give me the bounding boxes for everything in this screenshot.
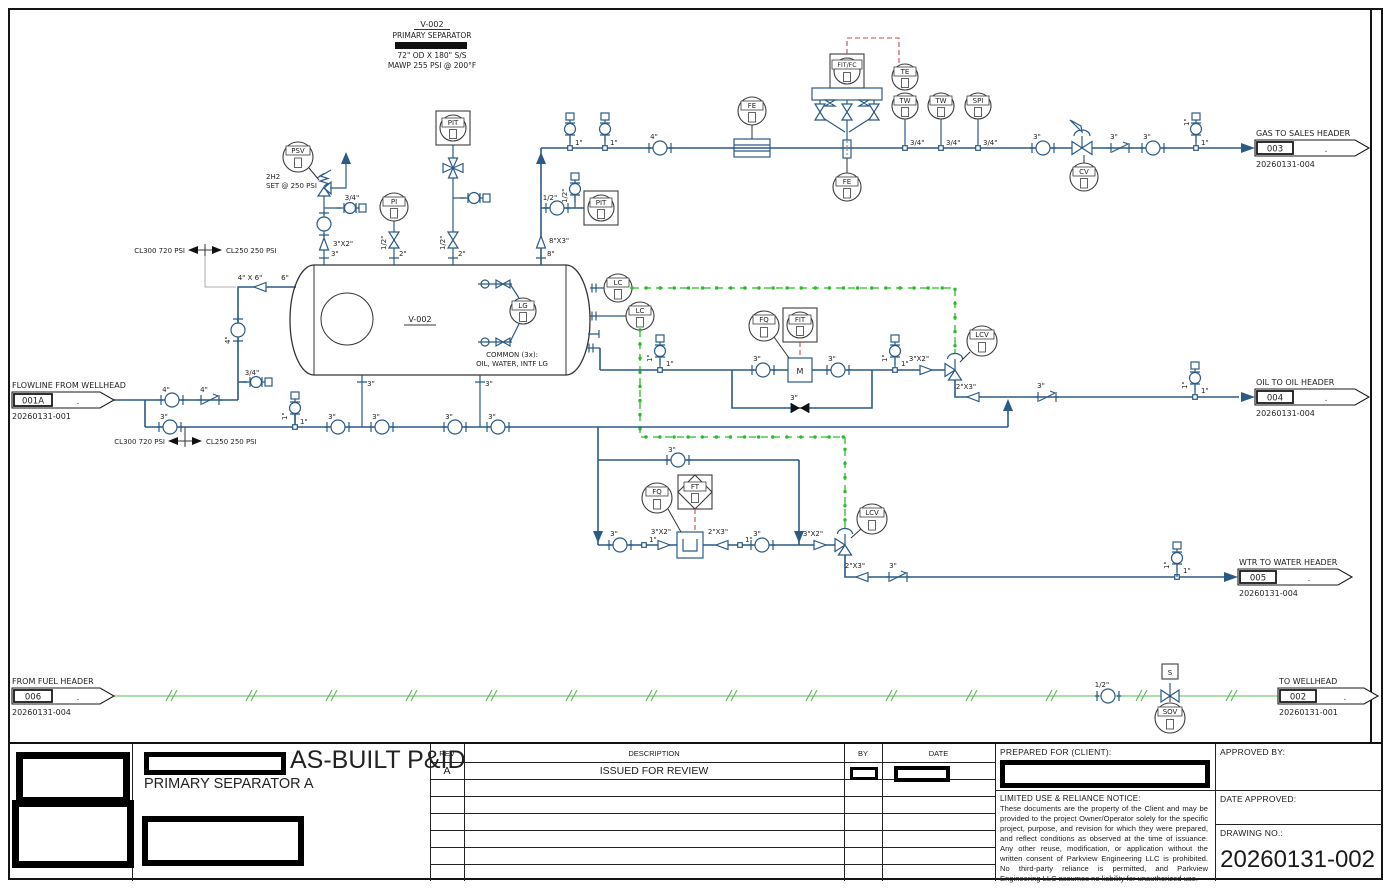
svg-text:TW: TW [934, 97, 946, 105]
size-label: 1" [1183, 118, 1191, 126]
line-dwg: 20260131-001 [1279, 708, 1338, 717]
svg-text:LG: LG [518, 302, 527, 310]
pid-drawing-page: V-002 PRIMARY SEPARATOR 72" OD X 180" S/… [0, 0, 1392, 889]
size-label: 3" [488, 413, 496, 421]
svg-text:SPI: SPI [973, 97, 984, 105]
redacted-logo [12, 800, 134, 868]
size-label: 1/2" [543, 194, 558, 202]
size-label: 3" [1110, 133, 1118, 141]
drawing-no-label: DRAWING NO.: [1220, 828, 1283, 838]
size-label: 3" [610, 530, 618, 538]
connector-gas-out: 003 . GAS TO SALES HEADER 20260131-004 [1241, 129, 1369, 169]
vent-valve [655, 335, 666, 365]
size-label: 2" [458, 250, 466, 258]
drain-valve [242, 377, 272, 388]
ball-valve [442, 420, 468, 434]
meter-label: M [797, 367, 804, 376]
instrument-fit: FIT [783, 308, 817, 342]
svg-text:PIT: PIT [596, 199, 607, 207]
equipment-rating: MAWP 255 PSI @ 200°F [388, 61, 476, 70]
spec-class-right: CL250 250 PSI [206, 438, 257, 446]
size-label: 6" [281, 274, 289, 282]
vent-valve [460, 193, 490, 204]
size-label: 1/2" [380, 236, 388, 251]
redacted-by [850, 767, 878, 780]
spec-class-right: CL250 250 PSI [226, 247, 277, 255]
size-label: 4" [162, 386, 170, 394]
expander-2x3 [856, 573, 868, 582]
svg-text:CV: CV [1079, 168, 1089, 176]
size-label: 2"X3" [845, 562, 865, 570]
size-label: 1" [1181, 381, 1189, 389]
spec-break-top: CL300 720 PSI CL250 250 PSI [134, 244, 276, 256]
size-label: 3" [889, 562, 897, 570]
instrument-pit-1: PIT [436, 111, 470, 145]
size-label: 1/2" [439, 236, 447, 251]
size-label: 1" [1201, 139, 1209, 147]
inlet-piping: 4" 4" 4" 4" X 6" 6" 3/4" [114, 256, 296, 427]
size-label: 1" [649, 536, 657, 544]
level-control-valve [835, 529, 853, 556]
equipment-name: PRIMARY SEPARATOR [392, 31, 471, 40]
connector-flowline-in: 001A . FLOWLINE FROM WELLHEAD 20260131-0… [12, 381, 126, 421]
ball-valve [749, 538, 775, 552]
line-title: TO WELLHEAD [1278, 677, 1337, 686]
size-label: 3" [1033, 133, 1041, 141]
size-label: 1" [666, 360, 674, 368]
svg-text:SOV: SOV [1163, 708, 1178, 716]
instrument-te: TE [892, 64, 918, 90]
line-dwg: 20260131-004 [12, 708, 71, 717]
size-label: 3" [753, 530, 761, 538]
line-number: 006 [25, 693, 41, 703]
gas-riser: PIT 8"X3" 8" 1/2" 1/2" [536, 148, 618, 265]
manway [321, 293, 373, 345]
rev-col-header: REV [430, 749, 464, 758]
svg-text:LCV: LCV [975, 331, 989, 339]
svg-text:FE: FE [748, 102, 756, 110]
size-label: 1/2" [1095, 681, 1110, 689]
svg-text:FT: FT [691, 483, 700, 491]
size-label: 3" [445, 413, 453, 421]
vent-valve [600, 113, 611, 143]
psv-set-note: SET @ 250 PSI [266, 182, 317, 190]
reducer-3x2 [320, 238, 329, 250]
svg-text:FQ: FQ [652, 488, 662, 496]
size-label: 1" [1183, 567, 1191, 575]
size-label: 3/4" [910, 139, 925, 147]
control-valve [1070, 120, 1092, 155]
check-valve [1035, 391, 1059, 402]
size-label: 3" [328, 413, 336, 421]
water-line: LCV FQ FT 3" 1" 3"X2" 2"X3" 1" 3" 3"X2" … [598, 475, 1224, 582]
svg-text:LCV: LCV [865, 509, 879, 517]
level-control-valve [945, 354, 963, 381]
line-dwg: 20260131-004 [1239, 589, 1298, 598]
check-valve [1108, 142, 1132, 153]
size-label: 3" [367, 380, 375, 388]
rev-a: A [430, 765, 464, 777]
date-approved-label: DATE APPROVED: [1220, 794, 1296, 804]
line-dot: . [77, 693, 80, 703]
spec-class-left: CL300 720 PSI [134, 247, 185, 255]
check-valve [886, 571, 910, 582]
rev-a-description: ISSUED FOR REVIEW [464, 765, 844, 777]
svg-text:LC: LC [614, 279, 623, 287]
ball-valve [607, 538, 633, 552]
psv-branch: PSV 2H2 SET @ 250 PSI 3/4" 3"X2" 3" [266, 142, 366, 258]
line-dwg: 20260131-001 [12, 412, 71, 421]
redacted-client [1000, 760, 1210, 788]
approved-by-label: APPROVED BY: [1220, 747, 1285, 757]
instrument-fe-2: FE [833, 173, 861, 201]
spec-break-bottom: CL300 720 PSI CL250 250 PSI [114, 427, 256, 447]
date-col-header: DATE [882, 749, 995, 758]
flow-meter [677, 532, 703, 558]
instrument-fe-1: FE [738, 97, 766, 125]
ball-valve [325, 420, 351, 434]
svg-text:PSV: PSV [291, 147, 305, 155]
svg-text:PI: PI [391, 198, 397, 206]
size-label: 1" [1163, 561, 1171, 569]
line-dot: . [77, 397, 80, 407]
connector-oil-out: 004 . OIL TO OIL HEADER 20260131-004 [1241, 378, 1369, 418]
size-label: 3" [753, 355, 761, 363]
expander-2x3 [716, 541, 728, 550]
line-number: 004 [1267, 394, 1283, 404]
reducer-8x3 [537, 236, 546, 248]
ball-valve [159, 393, 185, 407]
size-label: 3" [372, 413, 380, 421]
ball-valve [647, 141, 673, 155]
svg-text:FIT: FIT [795, 316, 806, 324]
line-title: FLOWLINE FROM WELLHEAD [12, 381, 126, 390]
instrument-fq-1: FQ [749, 311, 779, 341]
instrument-sov: SOV [1155, 703, 1185, 733]
size-label: 4" [224, 336, 232, 344]
instrument-pit-2: PIT [584, 191, 618, 225]
connector-water-out: 005 . WTR TO WATER HEADER 20260131-004 [1224, 558, 1352, 598]
closed-valve [789, 403, 811, 413]
line-dot: . [1325, 394, 1328, 404]
manifold-valve [869, 104, 879, 120]
ball-valve [485, 420, 511, 434]
size-label: 1" [610, 139, 618, 147]
instrument-lcv-1: LCV [967, 326, 997, 356]
line-dwg: 20260131-004 [1256, 160, 1315, 169]
size-label: 1" [1201, 387, 1209, 395]
size-label: 3" [1037, 382, 1045, 390]
lg-note: COMMON (3x): [486, 351, 538, 359]
title-block: AS-BUILT P&ID PRIMARY SEPARATOR A REV DE… [10, 742, 1382, 881]
size-label: 3/4" [245, 369, 260, 377]
ball-valve [231, 317, 245, 343]
manifold-valve [815, 104, 825, 120]
manifold-valve [443, 158, 463, 178]
reducer-3x2 [814, 541, 826, 550]
gauge-valve [389, 232, 399, 248]
psv-set-note: 2H2 [266, 173, 280, 181]
size-label: 3/4" [946, 139, 961, 147]
instrument-tw-1: TW [892, 93, 918, 119]
svg-text:TW: TW [898, 97, 910, 105]
svg-text:LC: LC [636, 307, 645, 315]
equipment-tag: V-002 [420, 20, 443, 29]
instrument-lg: LG [510, 298, 536, 324]
redacted-company [144, 752, 286, 775]
prepared-for-label: PREPARED FOR (CLIENT): [1000, 747, 1111, 757]
instrument-tw-2: TW [928, 93, 954, 119]
line-dot: . [1325, 145, 1328, 155]
vent-valve [570, 173, 581, 203]
line-dot: . [1344, 693, 1347, 703]
size-label: 3/4" [983, 139, 998, 147]
solenoid-label: S [1168, 669, 1173, 677]
size-label: 3" [331, 250, 339, 258]
size-label: 1" [300, 418, 308, 426]
svg-text:PIT: PIT [448, 119, 459, 127]
pit-branch-1: PIT 1/2" 2" [436, 111, 490, 258]
connector-fuel-in: 006 . FROM FUEL HEADER 20260131-004 [12, 677, 114, 717]
reducer-4x6 [254, 283, 266, 292]
instrument-psv: PSV [283, 142, 313, 172]
line-number: 003 [1267, 145, 1283, 155]
size-label: 2"X3" [956, 383, 976, 391]
doc-subtitle: PRIMARY SEPARATOR A [144, 776, 314, 792]
instrument-ft: FT [678, 475, 712, 509]
notice-body: These documents are the property of the … [1000, 804, 1208, 884]
notice-title: LIMITED USE & RELIANCE NOTICE: [1000, 794, 1141, 803]
pid-diagram: V-002 PRIMARY SEPARATOR 72" OD X 180" S/… [0, 0, 1392, 742]
line-dot: . [1308, 574, 1311, 584]
size-label: 1" [745, 536, 753, 544]
oil-line: M FQ FIT LCV 1" 1" 3" 3" 3" 1" 1" 3"X2" … [600, 308, 1239, 427]
vent-valve [565, 113, 576, 143]
line-number: 005 [1250, 574, 1266, 584]
size-label: 3/4" [345, 194, 360, 202]
size-label: 1/2" [561, 189, 569, 204]
fuel-line: 1/2" S SOV [114, 664, 1278, 733]
svg-text:TE: TE [900, 68, 910, 76]
size-label: 4" X 6" [238, 274, 263, 282]
ball-valve [157, 420, 183, 434]
size-label: 4" [200, 386, 208, 394]
line-title: WTR TO WATER HEADER [1239, 558, 1338, 567]
line-title: OIL TO OIL HEADER [1256, 378, 1335, 387]
vent-valve [890, 335, 901, 365]
redacted-logo [16, 752, 130, 804]
ball-valve [665, 453, 691, 467]
size-label: 3" [828, 355, 836, 363]
size-label: 3" [485, 380, 493, 388]
size-label: 4" [650, 133, 658, 141]
ball-valve [369, 420, 395, 434]
instrument-lc-2: LC [626, 302, 654, 330]
size-label: 3" [160, 413, 168, 421]
size-label: 3"X2" [909, 355, 929, 363]
instrument-cv: CV [1070, 163, 1098, 191]
size-label: 1" [881, 354, 889, 362]
ball-valve [1140, 141, 1166, 155]
ball-valve [317, 211, 331, 237]
size-label: 2"X3" [708, 528, 728, 536]
expander-2x3 [967, 393, 979, 402]
redaction-bar [395, 42, 467, 49]
size-label: 1" [281, 412, 289, 420]
reducer-3x2 [658, 541, 670, 550]
connector-wellhead-out: 002 . TO WELLHEAD 20260131-001 [1278, 677, 1378, 717]
lg-note: OIL, WATER, INTF LG [476, 360, 548, 368]
by-col-header: BY [844, 749, 882, 758]
vent-valve [336, 203, 366, 214]
reducer-3x2 [920, 366, 932, 375]
instrument-fq-2: FQ [642, 483, 672, 513]
equipment-size: 72" OD X 180" S/S [397, 51, 466, 60]
size-label: 3"X2" [803, 530, 823, 538]
equipment-note: V-002 PRIMARY SEPARATOR 72" OD X 180" S/… [388, 20, 476, 70]
line-number: 001A [22, 397, 44, 407]
ball-valve [750, 363, 776, 377]
vessel-tag: V-002 [408, 315, 431, 324]
ball-valve [1095, 689, 1121, 703]
size-label: 8" [547, 250, 555, 258]
size-label: 3" [668, 446, 676, 454]
gauge-valve [448, 232, 458, 248]
pi-branch: PI 1/2" 2" [380, 193, 408, 258]
vent-valve [1191, 113, 1202, 143]
spec-class-left: CL300 720 PSI [114, 438, 165, 446]
ball-valve [1030, 141, 1056, 155]
manifold-valve [842, 104, 852, 120]
instrument-pi: PI [380, 193, 408, 221]
line-number: 002 [1290, 693, 1306, 703]
size-label: 1" [575, 139, 583, 147]
size-label: 3" [790, 394, 798, 402]
size-label: 3" [1143, 133, 1151, 141]
svg-text:FE: FE [843, 178, 851, 186]
line-dwg: 20260131-004 [1256, 409, 1315, 418]
instrument-lc-1: LC [604, 274, 632, 302]
line-title: GAS TO SALES HEADER [1256, 129, 1351, 138]
size-label: 8"X3" [549, 237, 569, 245]
vent-valve [290, 392, 301, 422]
instrument-lcv-2: LCV [857, 504, 887, 534]
size-label: 1" [646, 354, 654, 362]
desc-col-header: DESCRIPTION [464, 749, 844, 758]
size-label: 3"X2" [333, 240, 353, 248]
instrument-fit-fc: FIT/FC [830, 54, 864, 88]
redacted-date [894, 766, 950, 782]
redacted-stamp [142, 816, 304, 866]
gas-line: 1" 1" 4" FE FIT/FC FE TE TW TW SPI 3/4" … [541, 38, 1241, 201]
drawing-number: 20260131-002 [1215, 846, 1375, 874]
svg-text:FIT/FC: FIT/FC [837, 62, 856, 69]
vent-valve [1190, 362, 1201, 392]
svg-text:FQ: FQ [759, 316, 769, 324]
size-label: 1" [901, 360, 909, 368]
ball-valve [825, 363, 851, 377]
size-label: 2" [399, 250, 407, 258]
size-label: 3"X2" [651, 528, 671, 536]
separator-vessel: V-002 LG COMMON (3x): OIL, WATER, INTF L… [290, 258, 626, 427]
instrument-spi: SPI [965, 93, 991, 119]
line-title: FROM FUEL HEADER [12, 677, 94, 686]
